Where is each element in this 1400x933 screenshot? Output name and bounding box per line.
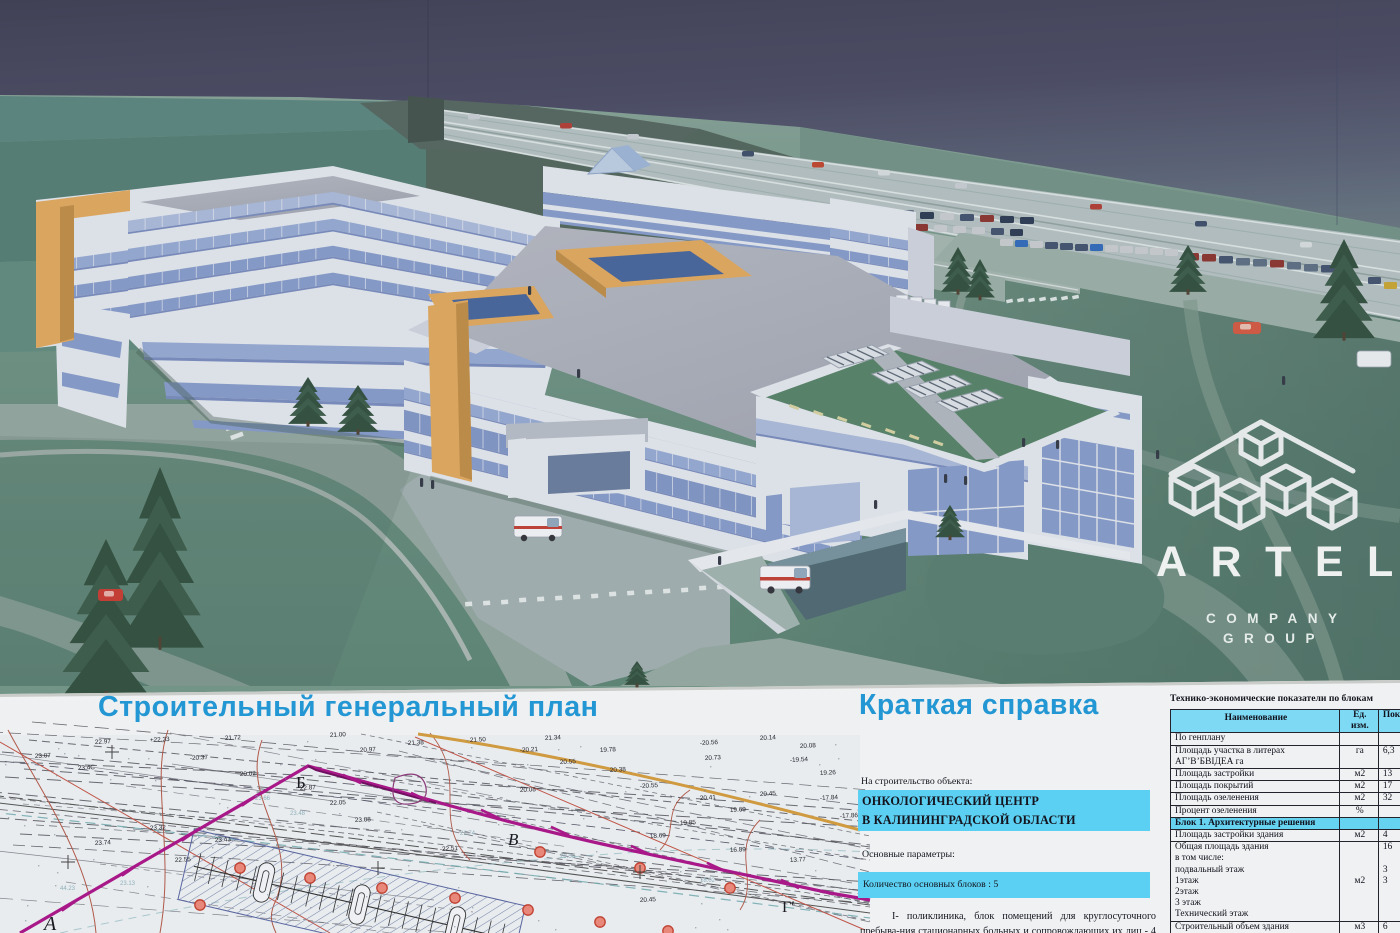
svg-text:21.34: 21.34: [545, 734, 562, 742]
svg-text:19.85: 19.85: [680, 819, 697, 827]
svg-text:-20.37: -20.37: [190, 754, 209, 762]
svg-text:21.00: 21.00: [330, 731, 347, 739]
svg-text:-22.51: -22.51: [440, 845, 459, 853]
svg-text:16.89: 16.89: [730, 846, 747, 854]
svg-text:18.69: 18.69: [650, 832, 667, 840]
svg-text:44.23: 44.23: [60, 886, 76, 892]
svg-text:23.74: 23.74: [95, 839, 112, 847]
svg-text:23.32: 23.32: [150, 824, 167, 832]
svg-text:Б: Б: [296, 773, 306, 792]
svg-text:22.97: 22.97: [95, 738, 112, 746]
svg-text:21.72: 21.72: [225, 734, 242, 742]
svg-text:20.50: 20.50: [560, 854, 576, 860]
svg-text:23.4C: 23.4C: [78, 764, 96, 772]
svg-text:А: А: [42, 913, 57, 933]
svg-text:20.38: 20.38: [610, 766, 627, 774]
svg-text:19.69: 19.69: [730, 806, 747, 814]
svg-text:18.02: 18.02: [700, 878, 716, 884]
svg-text:20.08: 20.08: [800, 742, 817, 750]
svg-text:20.02: 20.02: [240, 770, 257, 778]
svg-text:21.74: 21.74: [460, 831, 476, 837]
svg-text:20.45: 20.45: [640, 896, 657, 904]
svg-text:В: В: [508, 830, 519, 849]
svg-text:22.05: 22.05: [330, 799, 347, 807]
svg-text:20.41: 20.41: [700, 794, 717, 802]
svg-text:21.50: 21.50: [470, 736, 487, 744]
svg-text:20.55: 20.55: [560, 758, 577, 766]
svg-text:19.78: 19.78: [600, 746, 617, 754]
svg-text:23.43: 23.43: [215, 836, 232, 844]
svg-text:-17.86: -17.86: [840, 812, 859, 820]
svg-text:13.77: 13.77: [790, 856, 807, 864]
svg-text:20.73: 20.73: [705, 754, 722, 762]
svg-text:23.07: 23.07: [35, 752, 52, 760]
svg-text:-19.54: -19.54: [790, 756, 809, 764]
svg-text:-17.84: -17.84: [820, 794, 839, 802]
svg-text:+22.33: +22.33: [150, 736, 171, 744]
svg-text:23.66: 23.66: [255, 796, 271, 802]
svg-text:20.97: 20.97: [360, 746, 377, 754]
svg-text:-20.55: -20.55: [640, 782, 659, 790]
svg-text:23.13: 23.13: [120, 881, 136, 887]
svg-text:23.48: 23.48: [290, 811, 306, 817]
svg-text:21.38: 21.38: [408, 739, 425, 747]
svg-text:-20.56: -20.56: [700, 739, 719, 747]
svg-text:20.14: 20.14: [760, 734, 777, 742]
svg-text:19.26: 19.26: [820, 769, 837, 777]
svg-text:22.55: 22.55: [175, 856, 192, 864]
svg-text:-20.21: -20.21: [520, 746, 539, 754]
svg-text:20.08: 20.08: [520, 786, 537, 794]
svg-text:Г′: Г′: [782, 899, 795, 916]
svg-text:20.45: 20.45: [760, 790, 777, 798]
svg-text:23.08: 23.08: [355, 816, 372, 824]
